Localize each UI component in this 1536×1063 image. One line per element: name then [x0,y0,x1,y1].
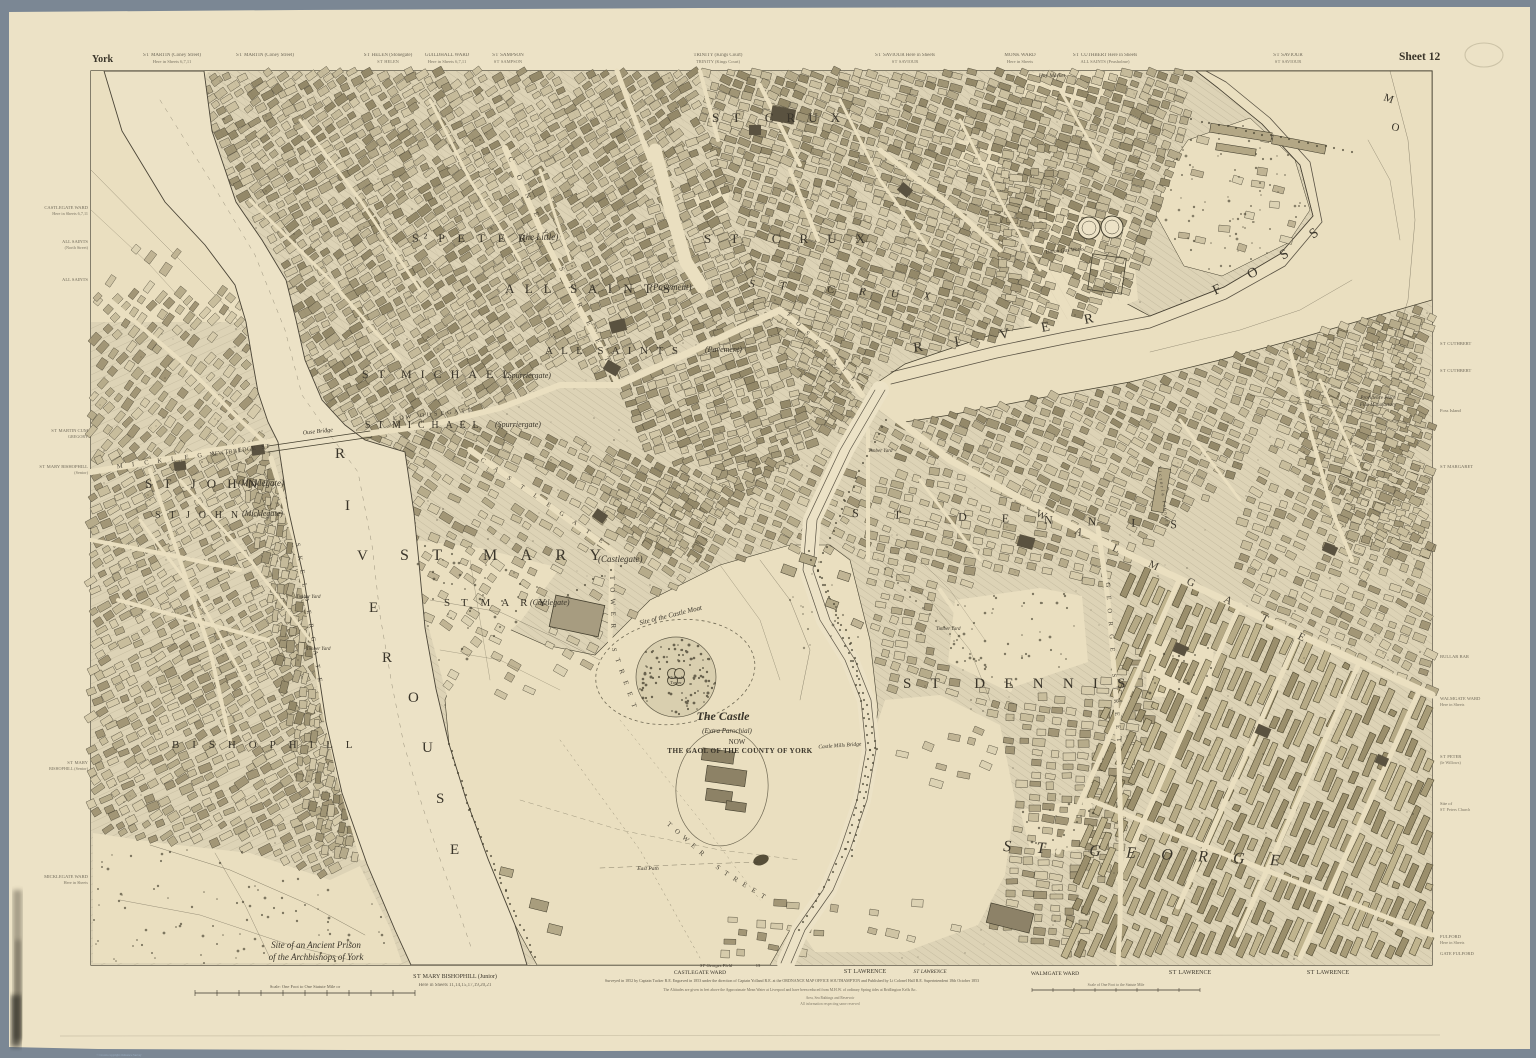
svg-text:TRINITY (Kings Court): TRINITY (Kings Court) [694,53,743,58]
svg-text:M: M [116,463,123,471]
svg-text:The Altitudes are given in fee: The Altitudes are given in feet above th… [663,988,916,992]
svg-text:ALL SAINTS: ALL SAINTS [62,277,88,282]
svg-text:E: E [1113,712,1120,716]
svg-text:S T SAMPSON: S T SAMPSON [492,53,524,58]
svg-text:Timber Yard: Timber Yard [296,595,321,600]
svg-text:GUILDHALL WARD: GUILDHALL WARD [425,53,470,58]
svg-text:Here in Sheets: Here in Sheets [64,880,89,885]
svg-text:Providence Place: Providence Place [1359,396,1396,401]
svg-text:S T SAVIOUR: S T SAVIOUR [1275,59,1302,64]
svg-text:E: E [609,612,617,617]
svg-text:Site of: Site of [1440,801,1453,806]
svg-text:S T LAWRENCE: S T LAWRENCE [1169,970,1212,976]
svg-text:(Castlegate): (Castlegate) [530,598,570,607]
svg-text:S² P E T E R: S² P E T E R [412,231,531,245]
svg-text:E: E [369,600,378,616]
svg-text:TRINITY (Kings Court): TRINITY (Kings Court) [696,59,741,64]
svg-text:S T LAWRENCE: S T LAWRENCE [844,969,887,975]
svg-text:C: C [144,459,149,467]
svg-text:S T SAVIOUR Here in Sheets: S T SAVIOUR Here in Sheets [875,53,935,58]
svg-text:ALL SAINTS (Peasholme): ALL SAINTS (Peasholme) [1080,59,1130,64]
svg-text:BULLAR BAR: BULLAR BAR [1440,654,1470,659]
svg-text:E: E [450,842,459,858]
svg-text:S T CUTHBERT Here in Sheets: S T CUTHBERT Here in Sheets [1073,53,1137,58]
svg-text:O: O [1106,608,1113,613]
svg-text:All information respecting sam: All information respecting same reserved [800,1002,860,1006]
svg-text:R: R [335,446,345,462]
svg-text:S T MARY BISHOPHILL: S T MARY BISHOPHILL [39,464,88,469]
svg-text:Foss Island: Foss Island [1440,408,1462,413]
svg-text:(Pavement): (Pavement) [650,282,691,292]
svg-text:R: R [382,650,392,666]
svg-text:S T LAWRENCE: S T LAWRENCE [1307,970,1350,976]
svg-text:Timber Yard: Timber Yard [868,449,893,454]
svg-text:S T HELEN: S T HELEN [377,59,400,64]
svg-text:13: 13 [756,963,761,968]
svg-text:NOW: NOW [729,738,746,746]
svg-text:Scale: One Foot to One Statute: Scale: One Foot to One Statute Mile or [270,984,341,989]
svg-text:S T HELEN (Stonegate): S T HELEN (Stonegate) [364,53,413,58]
svg-text:ALL SAINTS: ALL SAINTS [62,239,88,244]
svg-text:S T M I C H A E L: S T M I C H A E L [365,420,482,431]
svg-text:O: O [408,690,419,706]
svg-text:(Senior): (Senior) [74,470,88,475]
svg-text:Tower: Tower [670,680,682,685]
svg-text:CASTLEGATE WARD: CASTLEGATE WARD [674,970,726,976]
svg-text:S T MARY BISHOPHILL (Junior): S T MARY BISHOPHILL (Junior) [413,973,497,980]
svg-text:S T PETER: S T PETER [1440,754,1462,759]
svg-text:S T Georges Field: S T Georges Field [700,963,733,968]
svg-text:S T M I C H A E L: S T M I C H A E L [362,367,514,381]
svg-text:B I S H O P H I L L: B I S H O P H I L L [172,739,358,751]
svg-text:S T Peters Church: S T Peters Church [1440,807,1471,812]
svg-text:BISHOPHILL (Senior): BISHOPHILL (Senior) [49,766,89,771]
svg-text:R: R [609,623,617,628]
svg-text:Sheet 12: Sheet 12 [1399,51,1440,63]
svg-text:S: S [610,648,618,652]
svg-text:GATE FULFORD: GATE FULFORD [1440,951,1475,956]
svg-text:Timber Yard: Timber Yard [936,627,961,632]
svg-text:S T MARTIN CUM: S T MARTIN CUM [51,428,88,433]
svg-text:O: O [608,587,616,592]
svg-text:MICKLEGATE WARD: MICKLEGATE WARD [44,874,89,879]
svg-text:S T CUTHBERT: S T CUTHBERT [1440,368,1471,373]
svg-text:S T M A R Y: S T M A R Y [400,547,612,564]
svg-text:(Spurriergate): (Spurriergate) [495,420,541,429]
svg-text:Here in Sheets: Here in Sheets [1440,940,1465,945]
svg-text:E: E [1108,647,1115,651]
svg-text:Here in Sheets 11,14,15,17,19,: Here in Sheets 11,14,15,17,19,20,21 [419,983,492,988]
svg-text:S T MARTIN (Coney Street): S T MARTIN (Coney Street) [143,53,201,58]
svg-text:V: V [357,548,368,564]
svg-text:Flax Manufactory: Flax Manufactory [1359,403,1397,408]
svg-text:E: E [1114,725,1121,729]
svg-text:S T C R U X: S T C R U X [712,110,846,125]
svg-text:(North Street): (North Street) [65,245,89,250]
svg-text:York: York [92,54,114,65]
svg-text:(Micklegate): (Micklegate) [242,509,283,518]
svg-text:E: E [1105,596,1112,600]
svg-text:CASTLEGATE WARD: CASTLEGATE WARD [44,205,88,210]
svg-text:A L L S A I N T S: A L L S A I N T S [505,281,674,296]
svg-text:G: G [1108,634,1115,639]
svg-text:T: T [1115,738,1122,742]
svg-text:MONK WARD: MONK WARD [1004,53,1036,58]
svg-text:Here in Sheets: Here in Sheets [1440,702,1465,707]
svg-text:G: G [1104,582,1111,587]
svg-text:The Castle: The Castle [697,709,751,723]
svg-text:(the Little): (the Little) [520,232,558,242]
svg-text:U: U [422,740,433,756]
svg-text:W: W [609,598,617,605]
svg-text:Hay Market: Hay Market [1038,73,1066,79]
svg-text:(Extra Parochial): (Extra Parochial) [702,727,752,735]
svg-text:Here in Sheets: Here in Sheets [1007,59,1033,64]
svg-text:of the Archbishops of York: of the Archbishops of York [269,952,365,962]
svg-text:Surveyed in 1852 by Captain Tu: Surveyed in 1852 by Captain Tucker R.E. … [605,978,979,983]
svg-text:(Castlegate): (Castlegate) [598,554,643,564]
svg-text:S T D E N N I S: S T D E N N I S [903,676,1135,692]
svg-text:S: S [434,411,438,417]
svg-text:East Path: East Path [636,866,659,872]
svg-text:GREGORY: GREGORY [68,434,88,439]
svg-text:© Crown copyright Ordnance Sur: © Crown copyright Ordnance Survey [96,1052,142,1057]
svg-text:T: T [1111,686,1118,690]
svg-text:S: S [436,791,444,807]
svg-text:Scale of One Foot to the Statu: Scale of One Foot to the Statute Mile [1088,983,1145,987]
svg-text:A L L S A I N T S: A L L S A I N T S [545,345,681,357]
svg-text:S T SAMPSON: S T SAMPSON [494,59,523,64]
svg-text:S T SAVIOUR: S T SAVIOUR [1273,53,1303,58]
svg-text:WALMGATE WARD: WALMGATE WARD [1031,971,1079,977]
svg-text:(Pavement): (Pavement) [705,345,742,354]
svg-text:WALMGATE WARD: WALMGATE WARD [1440,696,1481,701]
svg-text:S T MARY: S T MARY [67,760,88,765]
svg-text:(le Willows): (le Willows) [1440,760,1461,765]
svg-text:I: I [345,498,350,514]
svg-text:Timber Yard: Timber Yard [306,647,331,652]
svg-text:FULFORD: FULFORD [1440,934,1462,939]
svg-text:(Micklegate): (Micklegate) [238,478,284,488]
svg-text:THE GAOL OF THE COUNTY OF YORK: THE GAOL OF THE COUNTY OF YORK [667,747,812,755]
svg-text:S T MARGARET: S T MARGARET [1440,464,1473,469]
svg-text:S T CUTHBERT: S T CUTHBERT [1440,341,1471,346]
svg-text:Site of an Ancient Prison: Site of an Ancient Prison [271,940,361,950]
svg-text:S T LAWRENCE: S T LAWRENCE [913,970,946,975]
svg-text:S T C R U X: S T C R U X [704,231,874,246]
svg-text:(Spurriergate): (Spurriergate) [505,371,551,380]
svg-text:W: W [405,414,412,421]
svg-text:S T SAVIOUR: S T SAVIOUR [892,59,919,64]
svg-text:S T MARTIN (Coney Street): S T MARTIN (Coney Street) [236,53,294,58]
svg-text:S T J O H N: S T J O H N [155,510,242,521]
